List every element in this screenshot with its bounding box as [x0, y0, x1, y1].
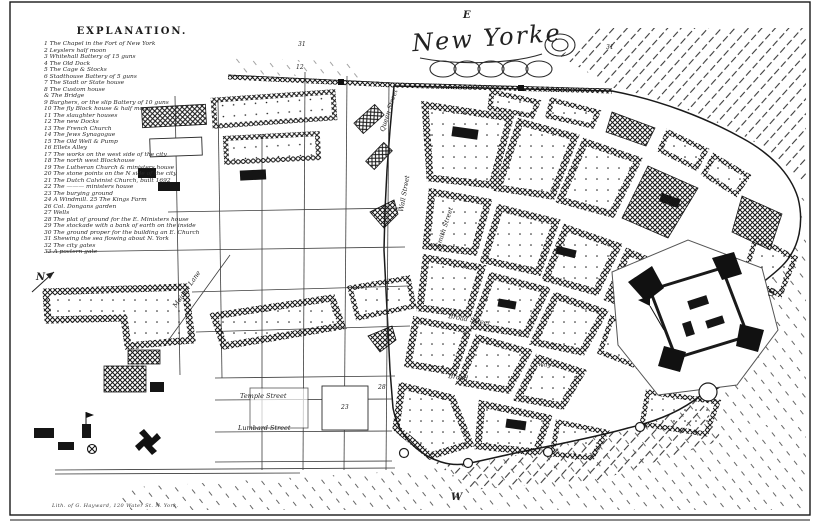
city-gate-icon: [338, 79, 344, 85]
compass-west: W: [451, 492, 462, 503]
legend-panel: EXPLANATION. 1 The Chapel in the Fort of…: [44, 26, 240, 256]
half-moon-battery: [699, 383, 717, 401]
windmill-icon: [135, 429, 161, 455]
compass-east: E: [463, 10, 471, 21]
legend-items: 1 The Chapel in the Fort of New York2 Le…: [44, 41, 240, 256]
compass-south: S: [768, 288, 775, 299]
shore-hamlet: [34, 412, 97, 454]
map-number: 31: [298, 41, 306, 48]
imprint: Lith. of G. Hayward, 120 Water St. N. Yo…: [52, 503, 179, 509]
flag-icon: [86, 412, 94, 418]
street-label: Temple Street: [240, 392, 287, 400]
map-number: 23: [340, 404, 349, 411]
compass-north: N: [36, 272, 45, 283]
map-number: 31: [606, 44, 614, 51]
map-number: 28: [377, 384, 386, 391]
street-label: way: [538, 360, 552, 369]
legend-heading: EXPLANATION.: [52, 26, 212, 37]
legend-item: 33 A postern gate: [44, 249, 240, 256]
left-garden-blocks: [46, 278, 414, 392]
lithograph-map-page: Queen Street Wall Street Smith Street Br…: [0, 0, 820, 530]
street-label: Lumbard Street: [237, 424, 291, 432]
city-gate-icon: [518, 85, 524, 91]
map-number: 12: [296, 64, 304, 71]
